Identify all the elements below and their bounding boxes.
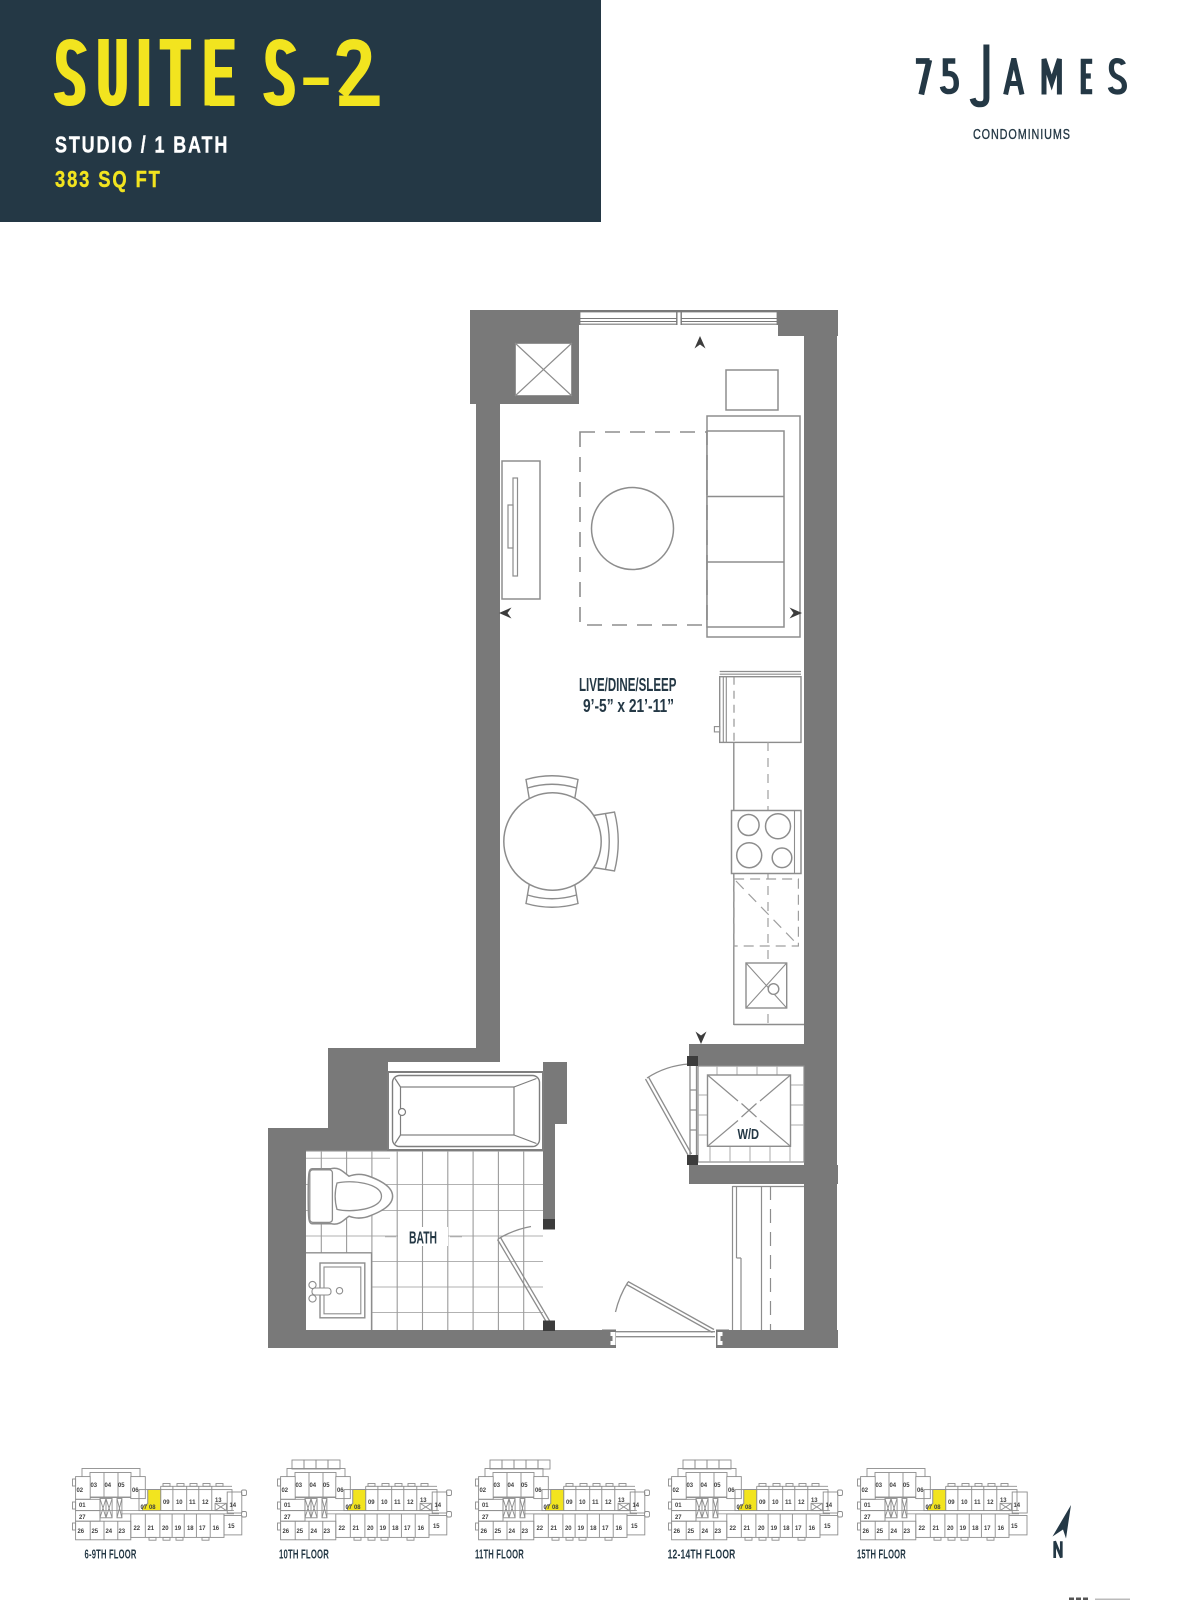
svg-text:20: 20	[367, 1525, 374, 1532]
svg-text:08: 08	[934, 1504, 941, 1511]
svg-text:23: 23	[715, 1528, 722, 1535]
svg-text:23: 23	[324, 1528, 331, 1535]
svg-text:18: 18	[392, 1525, 399, 1532]
svg-text:27: 27	[284, 1514, 291, 1521]
svg-text:12: 12	[605, 1499, 612, 1506]
svg-text:15: 15	[433, 1523, 440, 1530]
svg-text:21: 21	[551, 1525, 558, 1532]
svg-text:27: 27	[482, 1514, 489, 1521]
svg-text:17: 17	[404, 1525, 411, 1532]
svg-text:03: 03	[687, 1482, 694, 1489]
svg-text:27: 27	[864, 1514, 871, 1521]
svg-text:13: 13	[811, 1497, 818, 1504]
svg-text:15: 15	[1011, 1523, 1018, 1530]
svg-text:10: 10	[381, 1499, 388, 1506]
svg-text:14: 14	[633, 1502, 640, 1509]
svg-text:09: 09	[163, 1499, 170, 1506]
svg-text:15: 15	[824, 1523, 831, 1530]
svg-text:10: 10	[961, 1499, 968, 1506]
svg-text:12-14TH FLOOR: 12-14TH FLOOR	[668, 1548, 736, 1562]
svg-text:23: 23	[904, 1528, 911, 1535]
svg-text:14: 14	[1014, 1502, 1021, 1509]
svg-text:21: 21	[148, 1525, 155, 1532]
svg-text:12: 12	[407, 1499, 414, 1506]
svg-text:BATH: BATH	[409, 1229, 437, 1248]
svg-text:19: 19	[175, 1525, 182, 1532]
svg-text:22: 22	[339, 1525, 346, 1532]
svg-text:10TH FLOOR: 10TH FLOOR	[279, 1548, 329, 1563]
svg-text:24: 24	[509, 1528, 516, 1535]
svg-text:16: 16	[418, 1525, 425, 1532]
svg-text:15: 15	[228, 1523, 235, 1530]
svg-text:18: 18	[783, 1525, 790, 1532]
svg-text:06: 06	[535, 1487, 542, 1494]
svg-text:12: 12	[202, 1499, 209, 1506]
svg-text:05: 05	[714, 1482, 721, 1489]
svg-text:20: 20	[565, 1525, 572, 1532]
svg-text:21: 21	[933, 1525, 940, 1532]
svg-text:08: 08	[745, 1504, 752, 1511]
svg-text:11TH FLOOR: 11TH FLOOR	[475, 1548, 524, 1563]
svg-text:16: 16	[998, 1525, 1005, 1532]
svg-text:08: 08	[149, 1504, 156, 1511]
svg-text:12: 12	[798, 1499, 805, 1506]
svg-text:02: 02	[282, 1487, 289, 1494]
svg-text:26: 26	[863, 1528, 870, 1535]
svg-text:11: 11	[785, 1499, 792, 1506]
svg-text:01: 01	[79, 1502, 86, 1509]
svg-text:06: 06	[132, 1487, 139, 1494]
svg-text:27: 27	[79, 1514, 86, 1521]
svg-text:25: 25	[297, 1528, 304, 1535]
svg-text:15TH FLOOR: 15TH FLOOR	[857, 1548, 906, 1563]
svg-text:04: 04	[890, 1482, 897, 1489]
svg-text:19: 19	[771, 1525, 778, 1532]
svg-text:07: 07	[141, 1504, 148, 1511]
svg-text:07: 07	[926, 1504, 933, 1511]
svg-text:24: 24	[702, 1528, 709, 1535]
svg-text:10: 10	[176, 1499, 183, 1506]
svg-text:07: 07	[737, 1504, 744, 1511]
svg-text:10: 10	[579, 1499, 586, 1506]
svg-text:14: 14	[230, 1502, 237, 1509]
svg-text:24: 24	[311, 1528, 318, 1535]
svg-text:05: 05	[118, 1482, 125, 1489]
svg-text:13: 13	[420, 1497, 427, 1504]
svg-text:09: 09	[368, 1499, 375, 1506]
svg-text:LIVE/DINE/SLEEP: LIVE/DINE/SLEEP	[579, 675, 676, 695]
svg-text:23: 23	[119, 1528, 126, 1535]
svg-text:24: 24	[106, 1528, 113, 1535]
svg-text:08: 08	[552, 1504, 559, 1511]
svg-text:03: 03	[296, 1482, 303, 1489]
svg-text:17: 17	[199, 1525, 206, 1532]
svg-text:15: 15	[631, 1523, 638, 1530]
svg-text:04: 04	[701, 1482, 708, 1489]
svg-text:04: 04	[508, 1482, 515, 1489]
svg-text:13: 13	[1000, 1497, 1007, 1504]
svg-text:21: 21	[744, 1525, 751, 1532]
svg-text:383 SQ FT: 383 SQ FT	[55, 167, 162, 193]
svg-text:09: 09	[948, 1499, 955, 1506]
svg-text:02: 02	[77, 1487, 84, 1494]
svg-text:22: 22	[730, 1525, 737, 1532]
svg-text:06: 06	[337, 1487, 344, 1494]
svg-text:11: 11	[592, 1499, 599, 1506]
svg-text:10: 10	[772, 1499, 779, 1506]
svg-text:02: 02	[480, 1487, 487, 1494]
svg-text:CONDOMINIUMS: CONDOMINIUMS	[973, 125, 1071, 142]
svg-text:19: 19	[960, 1525, 967, 1532]
svg-text:02: 02	[673, 1487, 680, 1494]
svg-text:19: 19	[578, 1525, 585, 1532]
svg-text:22: 22	[919, 1525, 926, 1532]
svg-text:18: 18	[972, 1525, 979, 1532]
svg-text:16: 16	[616, 1525, 623, 1532]
svg-text:11: 11	[189, 1499, 196, 1506]
svg-text:17: 17	[602, 1525, 609, 1532]
svg-text:05: 05	[521, 1482, 528, 1489]
svg-text:16: 16	[213, 1525, 220, 1532]
svg-text:25: 25	[92, 1528, 99, 1535]
svg-text:20: 20	[947, 1525, 954, 1532]
svg-text:STUDIO / 1 BATH: STUDIO / 1 BATH	[55, 132, 229, 158]
svg-text:02: 02	[862, 1487, 869, 1494]
svg-text:25: 25	[688, 1528, 695, 1535]
svg-text:03: 03	[494, 1482, 501, 1489]
svg-text:W/D: W/D	[737, 1125, 759, 1142]
svg-text:08: 08	[354, 1504, 361, 1511]
svg-text:12: 12	[987, 1499, 994, 1506]
svg-text:25: 25	[495, 1528, 502, 1535]
svg-text:06: 06	[917, 1487, 924, 1494]
svg-text:14: 14	[826, 1502, 833, 1509]
svg-text:11: 11	[394, 1499, 401, 1506]
svg-text:04: 04	[105, 1482, 112, 1489]
svg-text:27: 27	[675, 1514, 682, 1521]
svg-text:05: 05	[903, 1482, 910, 1489]
svg-text:17: 17	[984, 1525, 991, 1532]
svg-text:20: 20	[758, 1525, 765, 1532]
svg-text:07: 07	[544, 1504, 551, 1511]
svg-text:17: 17	[795, 1525, 802, 1532]
svg-text:22: 22	[134, 1525, 141, 1532]
svg-text:01: 01	[482, 1502, 489, 1509]
svg-text:01: 01	[675, 1502, 682, 1509]
svg-text:09: 09	[566, 1499, 573, 1506]
svg-text:26: 26	[481, 1528, 488, 1535]
svg-text:18: 18	[187, 1525, 194, 1532]
svg-text:18: 18	[590, 1525, 597, 1532]
svg-text:07: 07	[346, 1504, 353, 1511]
svg-text:20: 20	[162, 1525, 169, 1532]
svg-text:01: 01	[284, 1502, 291, 1509]
svg-text:04: 04	[310, 1482, 317, 1489]
svg-text:26: 26	[674, 1528, 681, 1535]
svg-text:26: 26	[78, 1528, 85, 1535]
svg-text:13: 13	[215, 1497, 222, 1504]
svg-text:26: 26	[283, 1528, 290, 1535]
svg-text:22: 22	[537, 1525, 544, 1532]
svg-text:23: 23	[522, 1528, 529, 1535]
svg-text:03: 03	[91, 1482, 98, 1489]
svg-text:06: 06	[728, 1487, 735, 1494]
svg-text:13: 13	[618, 1497, 625, 1504]
svg-text:14: 14	[435, 1502, 442, 1509]
svg-text:05: 05	[323, 1482, 330, 1489]
svg-text:03: 03	[876, 1482, 883, 1489]
svg-text:19: 19	[380, 1525, 387, 1532]
svg-text:09: 09	[759, 1499, 766, 1506]
svg-text:24: 24	[891, 1528, 898, 1535]
svg-text:01: 01	[864, 1502, 871, 1509]
svg-text:11: 11	[974, 1499, 981, 1506]
svg-text:16: 16	[809, 1525, 816, 1532]
svg-text:25: 25	[877, 1528, 884, 1535]
svg-text:6-9TH FLOOR: 6-9TH FLOOR	[85, 1548, 137, 1563]
svg-text:21: 21	[353, 1525, 360, 1532]
svg-text:9’-5” x 21’-11”: 9’-5” x 21’-11”	[583, 696, 674, 716]
